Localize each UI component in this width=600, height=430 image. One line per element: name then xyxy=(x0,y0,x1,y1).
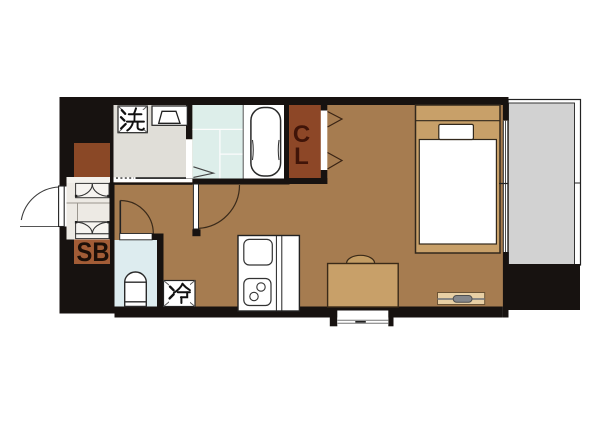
svg-text:L: L xyxy=(294,143,309,170)
svg-text:SB: SB xyxy=(77,237,110,267)
